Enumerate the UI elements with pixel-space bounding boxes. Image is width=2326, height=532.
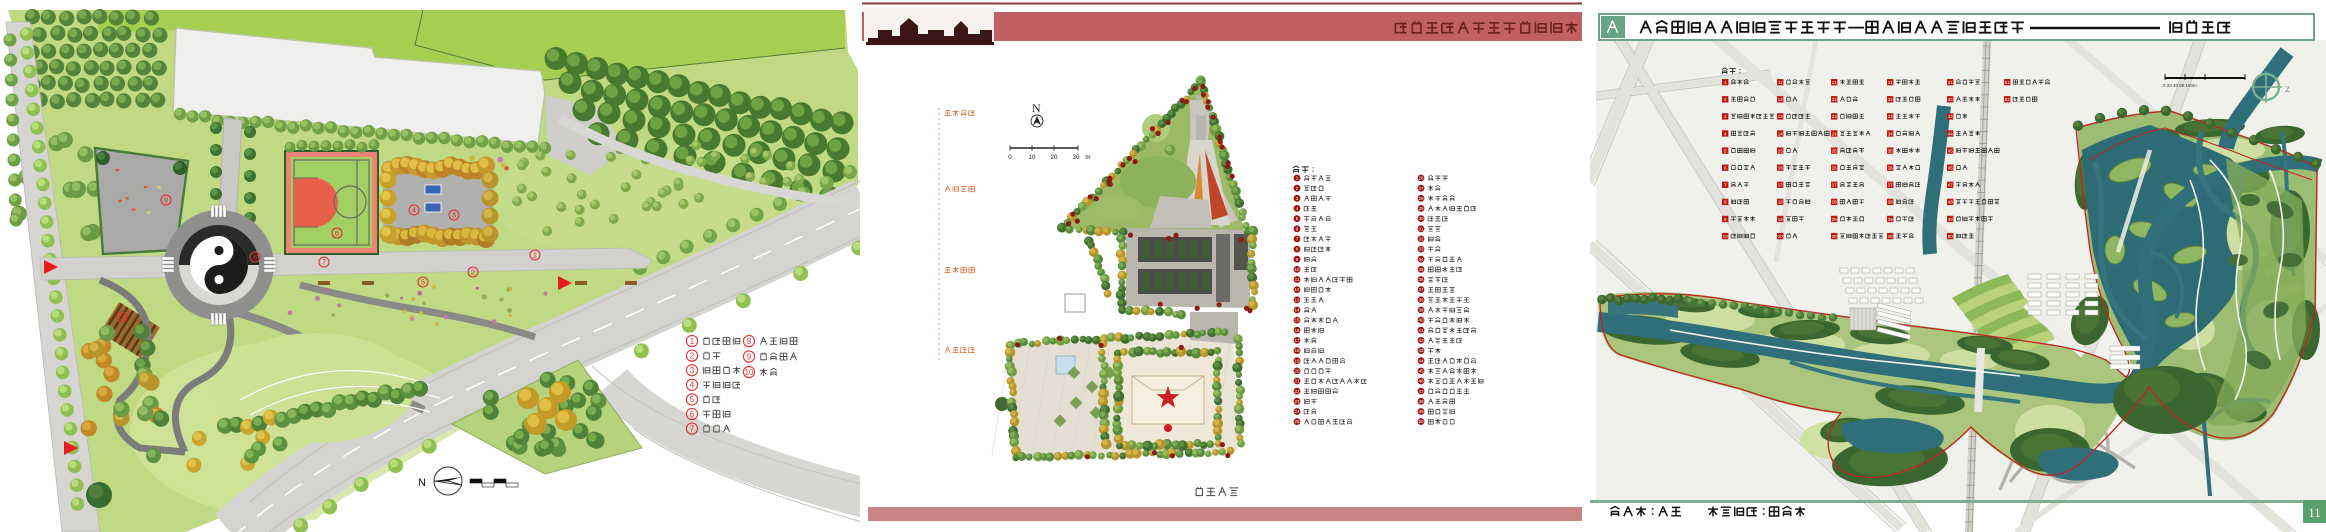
svg-text:28: 28 — [1832, 200, 1837, 205]
svg-text:7: 7 — [690, 424, 695, 433]
svg-text:24: 24 — [1294, 409, 1300, 414]
svg-text:49: 49 — [1418, 409, 1424, 414]
svg-text:5: 5 — [421, 278, 425, 287]
svg-text:z: z — [2285, 84, 2290, 95]
svg-text:10: 10 — [1723, 234, 1728, 239]
svg-text:22: 22 — [1832, 97, 1837, 102]
svg-text:6: 6 — [1296, 226, 1299, 231]
svg-text:1: 1 — [1296, 176, 1299, 181]
svg-text:1: 1 — [690, 337, 695, 346]
svg-text:33: 33 — [1888, 114, 1893, 119]
svg-text:37: 37 — [1888, 183, 1893, 188]
svg-text:15: 15 — [1294, 318, 1300, 323]
svg-text:6: 6 — [690, 410, 695, 419]
svg-text:35: 35 — [1888, 148, 1893, 153]
svg-text:39: 39 — [1888, 217, 1893, 222]
svg-text:5: 5 — [1296, 216, 1299, 221]
svg-text:0: 0 — [1008, 154, 1012, 161]
svg-text:4: 4 — [690, 381, 695, 390]
svg-text:34: 34 — [1418, 257, 1424, 262]
svg-text:16: 16 — [1778, 166, 1783, 171]
svg-text:3: 3 — [452, 211, 456, 220]
svg-text:33: 33 — [1418, 247, 1424, 252]
svg-text:49: 49 — [1948, 217, 1953, 222]
svg-text:41: 41 — [1948, 80, 1953, 85]
svg-text:48: 48 — [1948, 200, 1953, 205]
svg-text:47: 47 — [1948, 183, 1953, 188]
svg-text:32: 32 — [1418, 237, 1424, 242]
svg-text:8: 8 — [747, 337, 752, 346]
svg-text:48: 48 — [1418, 399, 1424, 404]
svg-text:36: 36 — [1888, 166, 1893, 171]
svg-text:19: 19 — [1294, 358, 1300, 363]
svg-text:46: 46 — [1948, 166, 1953, 171]
svg-text:45: 45 — [1948, 148, 1953, 153]
svg-text:38: 38 — [1418, 297, 1424, 302]
svg-text:29: 29 — [1832, 217, 1837, 222]
svg-text:28: 28 — [1418, 196, 1424, 201]
svg-text:25: 25 — [1294, 419, 1300, 424]
svg-text:18: 18 — [1778, 200, 1783, 205]
svg-text:30: 30 — [1418, 216, 1424, 221]
svg-text:2: 2 — [690, 351, 695, 360]
svg-text:23: 23 — [1832, 114, 1837, 119]
svg-text:45: 45 — [1418, 369, 1424, 374]
svg-text:11: 11 — [1778, 80, 1783, 85]
svg-text:40: 40 — [1418, 318, 1424, 323]
svg-text:9: 9 — [164, 196, 168, 205]
svg-text:44: 44 — [1418, 358, 1424, 363]
svg-text:18: 18 — [1294, 348, 1300, 353]
svg-text:21: 21 — [1294, 379, 1300, 384]
svg-text:11: 11 — [2308, 505, 2321, 520]
svg-text:4: 4 — [1296, 206, 1299, 211]
svg-text:6: 6 — [335, 229, 339, 238]
svg-text:N: N — [418, 477, 426, 489]
svg-text:40: 40 — [1888, 234, 1893, 239]
svg-text:4: 4 — [412, 206, 416, 215]
svg-text:10: 10 — [745, 368, 754, 377]
svg-text:42: 42 — [1418, 338, 1424, 343]
svg-text:25: 25 — [1832, 148, 1837, 153]
svg-text:43: 43 — [1418, 348, 1424, 353]
svg-text:7: 7 — [322, 258, 326, 267]
svg-text:19: 19 — [1778, 217, 1783, 222]
svg-text:9: 9 — [747, 352, 752, 361]
svg-text:41: 41 — [1418, 328, 1424, 333]
svg-text:10: 10 — [1294, 267, 1300, 272]
svg-text:38: 38 — [1888, 200, 1893, 205]
svg-text:26: 26 — [1418, 176, 1424, 181]
svg-text:50: 50 — [1418, 419, 1424, 424]
svg-text:30: 30 — [1832, 234, 1837, 239]
svg-text:12: 12 — [1294, 287, 1300, 292]
svg-text:21: 21 — [1832, 80, 1837, 85]
svg-text:30: 30 — [1073, 154, 1080, 161]
svg-text:17: 17 — [1294, 338, 1300, 343]
svg-text:51: 51 — [2005, 80, 2010, 85]
svg-text:22: 22 — [1294, 389, 1300, 394]
svg-text:3: 3 — [690, 366, 695, 375]
svg-text:17: 17 — [1778, 183, 1783, 188]
svg-text:24: 24 — [1832, 131, 1837, 136]
svg-text:44: 44 — [1948, 131, 1953, 136]
svg-text:14: 14 — [1294, 308, 1300, 313]
svg-text:31: 31 — [1888, 80, 1893, 85]
svg-text:3: 3 — [1296, 196, 1299, 201]
svg-text:10: 10 — [118, 313, 126, 322]
svg-text:2: 2 — [471, 268, 475, 277]
svg-text:8: 8 — [253, 253, 257, 262]
svg-text:36: 36 — [1418, 277, 1424, 282]
svg-text:1: 1 — [533, 251, 537, 260]
svg-text:2: 2 — [1296, 186, 1299, 191]
svg-text:N: N — [1032, 101, 1041, 115]
svg-text:34: 34 — [1888, 131, 1893, 136]
svg-text:52: 52 — [2005, 97, 2010, 102]
svg-text:32: 32 — [1888, 97, 1893, 102]
svg-text:29: 29 — [1418, 206, 1424, 211]
svg-text:15: 15 — [1778, 148, 1783, 153]
svg-text:11: 11 — [1295, 277, 1300, 282]
svg-text:m: m — [1085, 154, 1090, 161]
svg-text:47: 47 — [1418, 389, 1424, 394]
svg-text:46: 46 — [1418, 379, 1424, 384]
svg-text:5: 5 — [690, 395, 695, 404]
svg-text:20: 20 — [1294, 369, 1300, 374]
svg-text:13: 13 — [1778, 114, 1783, 119]
svg-text:0 20 40 80 160m: 0 20 40 80 160m — [2163, 83, 2197, 88]
svg-text:8: 8 — [1296, 247, 1299, 252]
svg-text:35: 35 — [1418, 267, 1424, 272]
svg-text:12: 12 — [1778, 97, 1783, 102]
svg-text:42: 42 — [1948, 97, 1953, 102]
svg-text:50: 50 — [1948, 234, 1953, 239]
svg-text:7: 7 — [1296, 237, 1299, 242]
svg-text:16: 16 — [1294, 328, 1300, 333]
svg-text:13: 13 — [1294, 297, 1300, 302]
svg-text:14: 14 — [1778, 131, 1783, 136]
svg-text:10: 10 — [1029, 154, 1036, 161]
svg-text:31: 31 — [1418, 226, 1424, 231]
svg-text:9: 9 — [1296, 257, 1299, 262]
svg-text:37: 37 — [1418, 287, 1424, 292]
svg-text:26: 26 — [1832, 166, 1837, 171]
svg-text:20: 20 — [1051, 154, 1058, 161]
svg-text:39: 39 — [1418, 308, 1424, 313]
svg-text:27: 27 — [1418, 186, 1424, 191]
svg-text:43: 43 — [1948, 114, 1953, 119]
svg-text:20: 20 — [1778, 234, 1783, 239]
svg-text:23: 23 — [1294, 399, 1300, 404]
svg-text:27: 27 — [1832, 183, 1837, 188]
